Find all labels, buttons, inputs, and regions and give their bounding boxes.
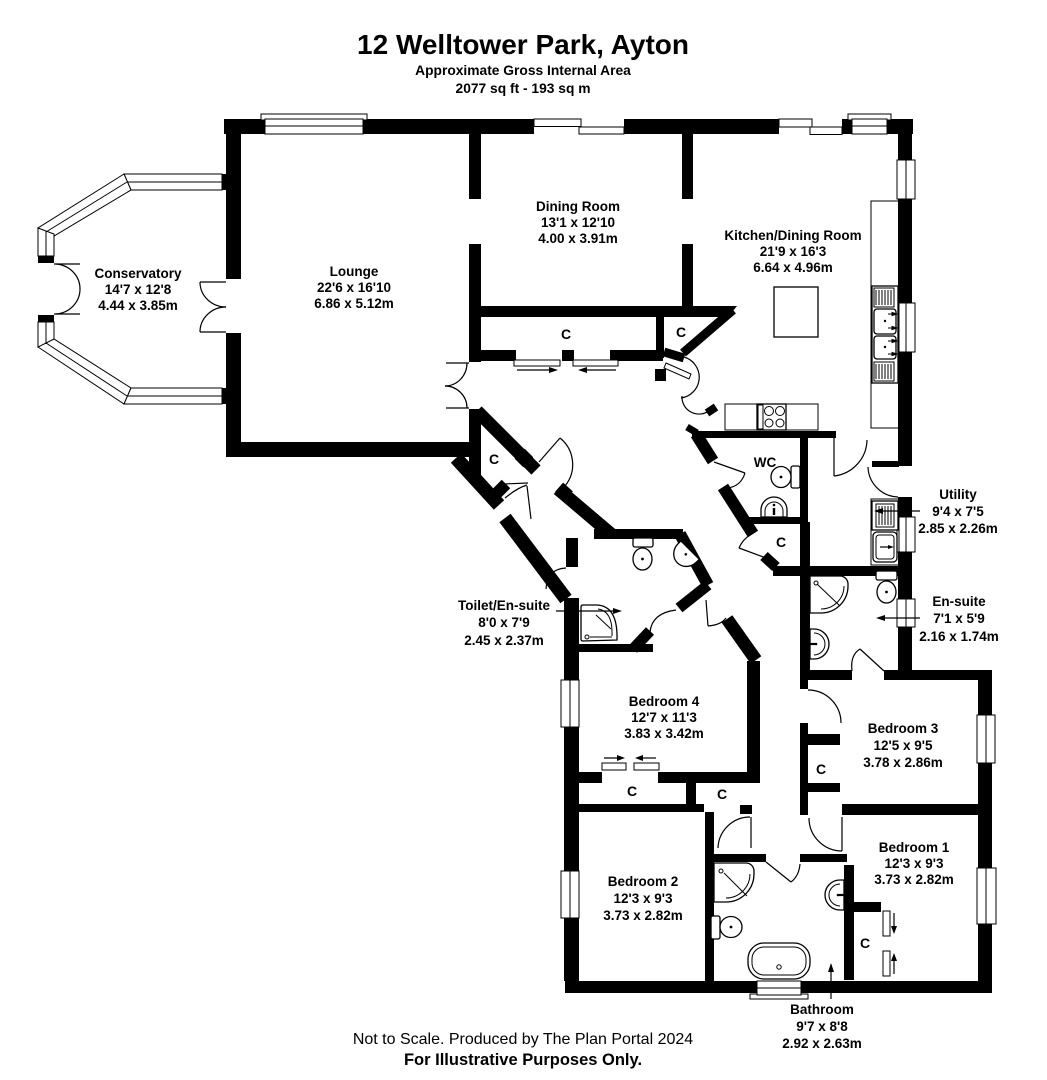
svg-text:Lounge: Lounge (330, 264, 379, 279)
svg-text:3.73 x 2.82m: 3.73 x 2.82m (603, 908, 683, 923)
svg-text:14'7 x 12'8: 14'7 x 12'8 (105, 282, 172, 297)
svg-text:Bedroom 4: Bedroom 4 (629, 694, 700, 709)
svg-text:3.83 x 3.42m: 3.83 x 3.42m (624, 726, 704, 741)
svg-text:12'3 x 9'3: 12'3 x 9'3 (885, 856, 944, 871)
svg-text:2.45 x 2.37m: 2.45 x 2.37m (464, 633, 544, 648)
svg-text:Bedroom 3: Bedroom 3 (868, 721, 939, 736)
svg-text:8'0 x 7'9: 8'0 x 7'9 (478, 615, 529, 630)
svg-text:13'1 x 12'10: 13'1 x 12'10 (541, 215, 615, 230)
svg-text:C: C (816, 761, 826, 777)
svg-text:9'7 x 8'8: 9'7 x 8'8 (796, 1019, 848, 1034)
svg-text:Approximate Gross Internal Are: Approximate Gross Internal Area (415, 63, 631, 78)
svg-text:C: C (489, 451, 499, 467)
svg-text:2.16 x 1.74m: 2.16 x 1.74m (919, 629, 999, 644)
svg-text:2.92 x 2.63m: 2.92 x 2.63m (782, 1036, 862, 1051)
svg-text:3.78 x 2.86m: 3.78 x 2.86m (863, 755, 943, 770)
svg-text:3.73 x 2.82m: 3.73 x 2.82m (874, 872, 954, 887)
svg-text:4.44 x 3.85m: 4.44 x 3.85m (98, 298, 178, 313)
svg-text:4.00 x 3.91m: 4.00 x 3.91m (538, 231, 618, 246)
svg-text:9'4 x 7'5: 9'4 x 7'5 (932, 504, 984, 519)
svg-text:C: C (776, 534, 786, 550)
svg-text:12'3 x 9'3: 12'3 x 9'3 (614, 891, 673, 906)
svg-text:7'1 x 5'9: 7'1 x 5'9 (933, 611, 984, 626)
svg-text:Bedroom 1: Bedroom 1 (879, 840, 950, 855)
svg-text:12'5 x 9'5: 12'5 x 9'5 (874, 738, 933, 753)
svg-text:En-suite: En-suite (932, 594, 986, 609)
svg-text:C: C (676, 324, 686, 340)
svg-text:22'6 x 16'10: 22'6 x 16'10 (317, 280, 391, 295)
svg-text:Kitchen/Dining Room: Kitchen/Dining Room (724, 228, 861, 243)
svg-text:C: C (860, 935, 870, 951)
svg-text:Bedroom 2: Bedroom 2 (608, 874, 679, 889)
svg-text:Toilet/En-suite: Toilet/En-suite (458, 598, 550, 613)
svg-text:2.85 x 2.26m: 2.85 x 2.26m (918, 521, 998, 536)
svg-text:21'9 x 16'3: 21'9 x 16'3 (760, 244, 827, 259)
svg-text:12 Welltower Park, Ayton: 12 Welltower Park, Ayton (357, 29, 689, 60)
svg-text:Utility: Utility (939, 487, 977, 502)
svg-text:C: C (561, 326, 571, 342)
svg-text:6.86 x 5.12m: 6.86 x 5.12m (314, 296, 394, 311)
svg-text:C: C (627, 783, 637, 799)
svg-text:Conservatory: Conservatory (94, 266, 182, 281)
svg-text:2077 sq ft - 193 sq m: 2077 sq ft - 193 sq m (456, 81, 591, 96)
svg-text:For Illustrative Purposes Only: For Illustrative Purposes Only. (404, 1051, 642, 1069)
svg-text:Not to Scale. Produced by The: Not to Scale. Produced by The Plan Porta… (353, 1031, 693, 1048)
svg-text:C: C (717, 786, 727, 802)
svg-text:12'7 x 11'3: 12'7 x 11'3 (631, 710, 697, 725)
svg-text:6.64 x 4.96m: 6.64 x 4.96m (753, 260, 833, 275)
svg-text:WC: WC (754, 455, 777, 470)
svg-text:Dining Room: Dining Room (536, 199, 620, 214)
svg-text:Bathroom: Bathroom (790, 1002, 854, 1017)
